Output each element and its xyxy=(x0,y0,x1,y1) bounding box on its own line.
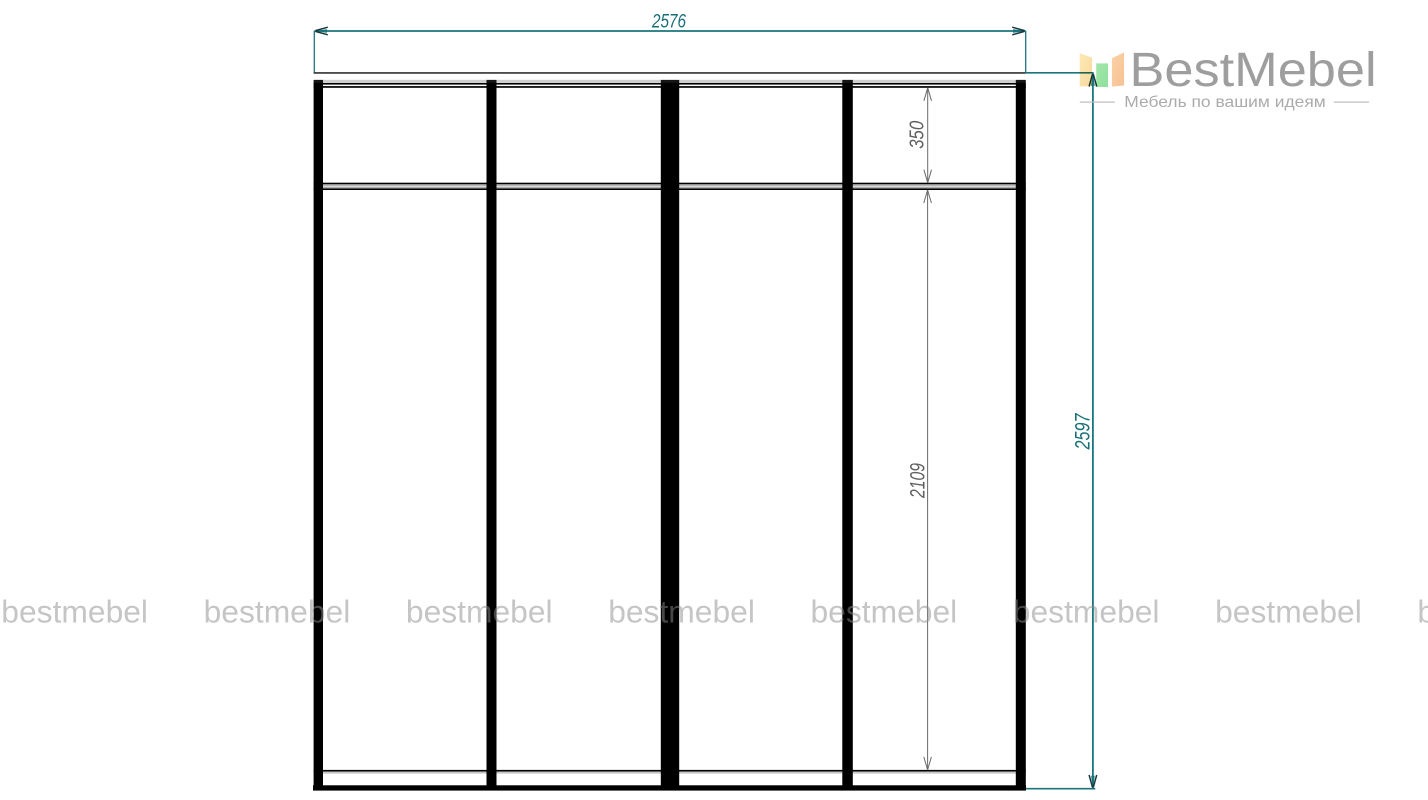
svg-text:350: 350 xyxy=(907,121,929,149)
svg-text:BestMebel: BestMebel xyxy=(1130,43,1377,97)
svg-text:2597: 2597 xyxy=(1072,412,1095,450)
svg-text:bestmebel: bestmebel xyxy=(1215,594,1362,630)
svg-text:2109: 2109 xyxy=(907,463,930,499)
svg-text:bestmebel: bestmebel xyxy=(406,594,553,630)
svg-text:bestmebel: bestmebel xyxy=(1,594,148,630)
svg-text:2576: 2576 xyxy=(651,11,686,32)
svg-text:bestmebel: bestmebel xyxy=(1013,594,1160,630)
svg-text:bestmebel: bestmebel xyxy=(608,594,755,630)
svg-text:bestmebel: bestmebel xyxy=(1417,594,1428,630)
svg-text:Мебель по вашим идеям: Мебель по вашим идеям xyxy=(1124,94,1325,111)
svg-text:bestmebel: bestmebel xyxy=(811,594,958,630)
svg-text:bestmebel: bestmebel xyxy=(204,594,351,630)
